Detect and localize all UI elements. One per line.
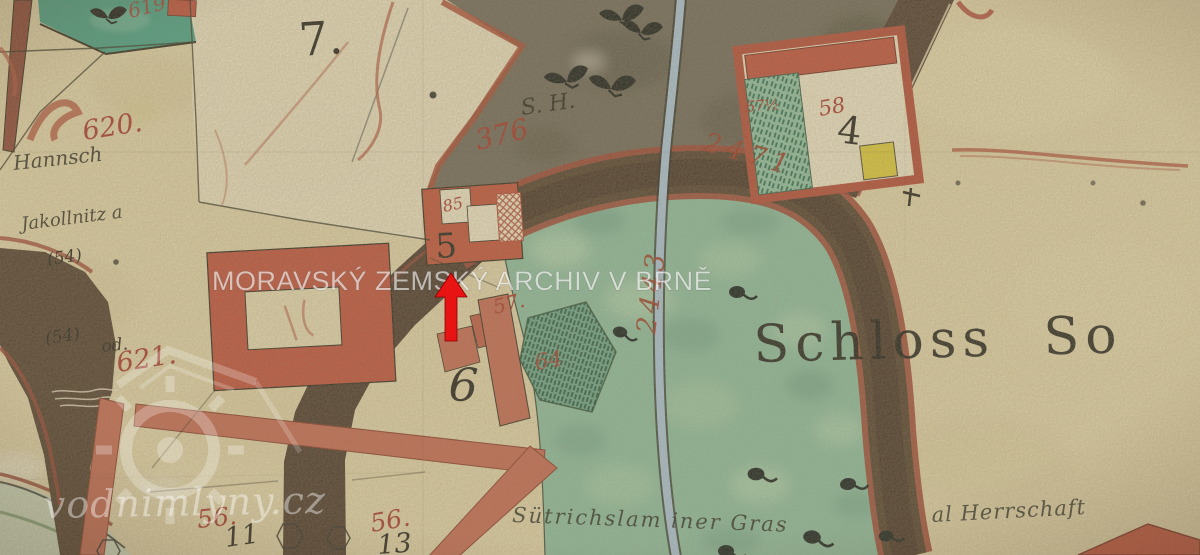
website-watermark-text: vodnimlyny.cz (43, 478, 326, 527)
historical-cadastral-map-scan: 7. 5 6 4 11 13 (54) (54) od. Hannsch Jak… (0, 0, 1200, 555)
